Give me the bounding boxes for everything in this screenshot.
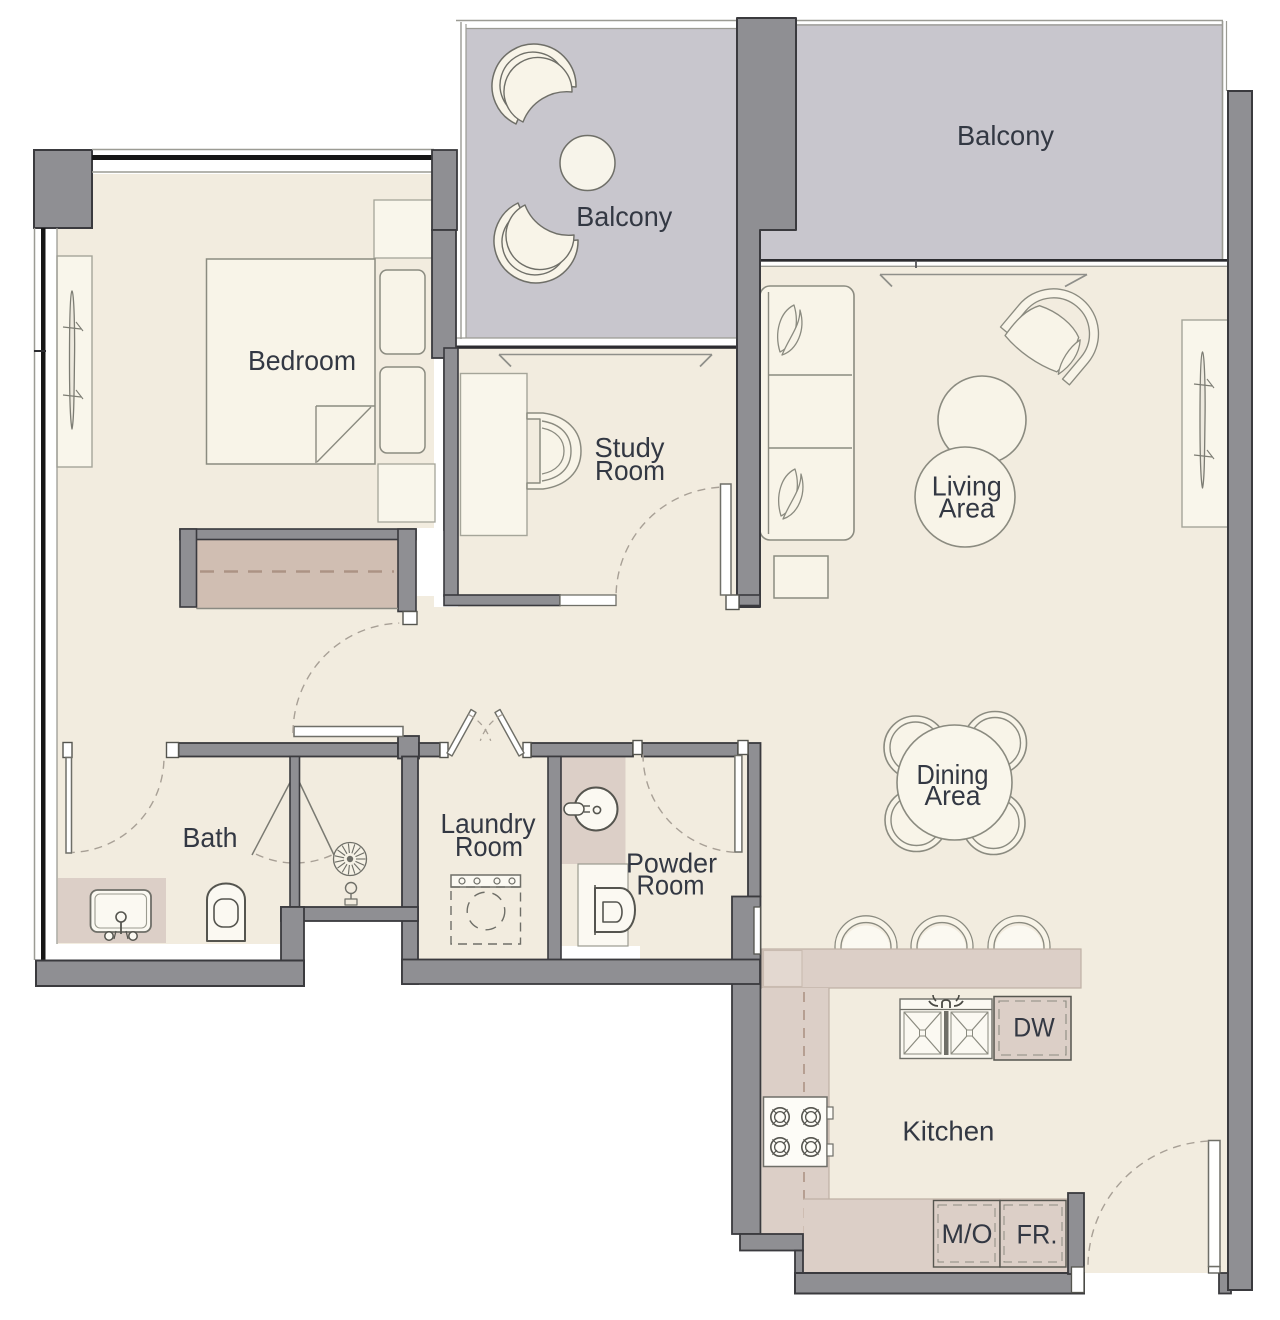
- svg-text:Room: Room: [637, 870, 705, 901]
- svg-text:Area: Area: [939, 493, 995, 524]
- svg-text:DW: DW: [1013, 1013, 1055, 1043]
- svg-text:Bath: Bath: [183, 822, 238, 853]
- svg-text:Bedroom: Bedroom: [248, 345, 356, 376]
- svg-text:FR.: FR.: [1017, 1220, 1058, 1250]
- svg-text:Room: Room: [455, 831, 523, 862]
- svg-text:Area: Area: [925, 780, 981, 811]
- svg-text:Room: Room: [595, 455, 665, 486]
- svg-text:Balcony: Balcony: [957, 120, 1054, 151]
- svg-text:M/O: M/O: [942, 1219, 993, 1249]
- svg-text:Balcony: Balcony: [576, 201, 672, 232]
- svg-text:Kitchen: Kitchen: [902, 1116, 994, 1147]
